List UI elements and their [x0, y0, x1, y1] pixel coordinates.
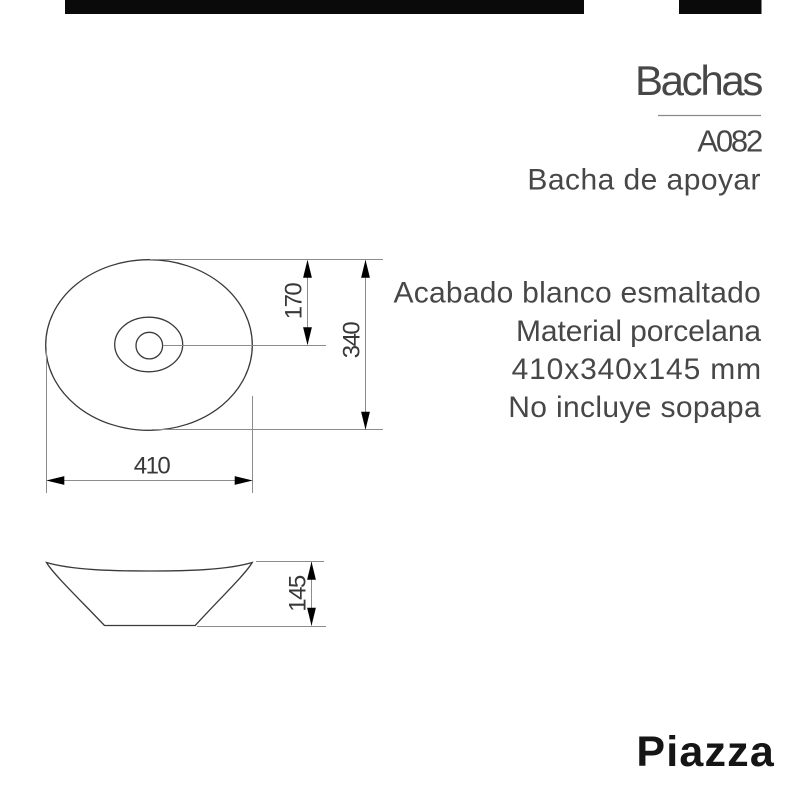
svg-text:Piazza: Piazza [636, 728, 775, 776]
svg-text:No incluye sopapa: No incluye sopapa [508, 391, 761, 424]
svg-text:Material porcelana: Material porcelana [516, 315, 761, 348]
svg-text:Bacha de apoyar: Bacha de apoyar [527, 164, 761, 197]
svg-text:410x340x145 mm: 410x340x145 mm [512, 353, 762, 386]
svg-text:Acabado blanco esmaltado: Acabado blanco esmaltado [394, 277, 761, 310]
svg-text:170: 170 [281, 283, 308, 320]
svg-text:145: 145 [285, 575, 312, 612]
svg-text:340: 340 [339, 322, 366, 359]
svg-text:Bachas: Bachas [635, 57, 762, 104]
svg-text:A082: A082 [697, 123, 762, 158]
svg-text:410: 410 [134, 453, 171, 480]
